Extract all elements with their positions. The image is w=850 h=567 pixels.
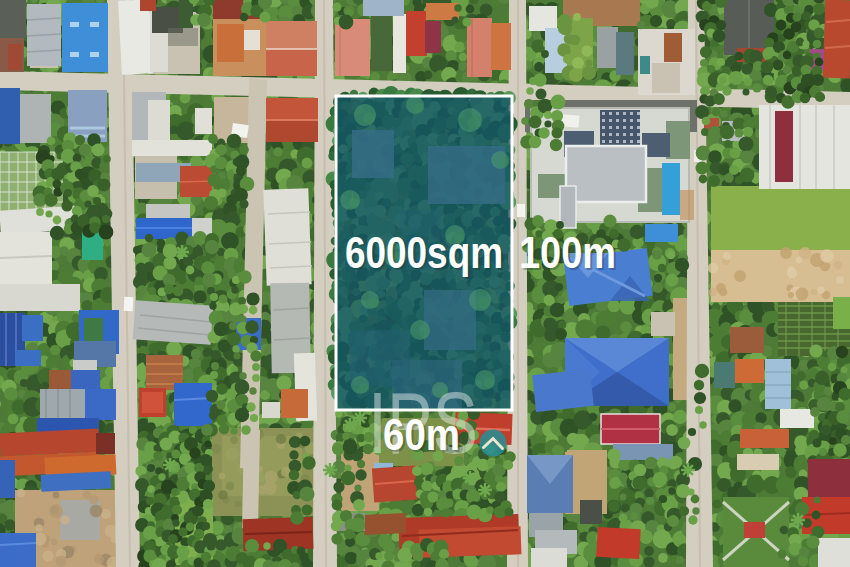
svg-text:6000sqm: 6000sqm <box>345 228 503 277</box>
svg-text:60m: 60m <box>383 410 460 459</box>
svg-text:100m: 100m <box>519 228 616 277</box>
